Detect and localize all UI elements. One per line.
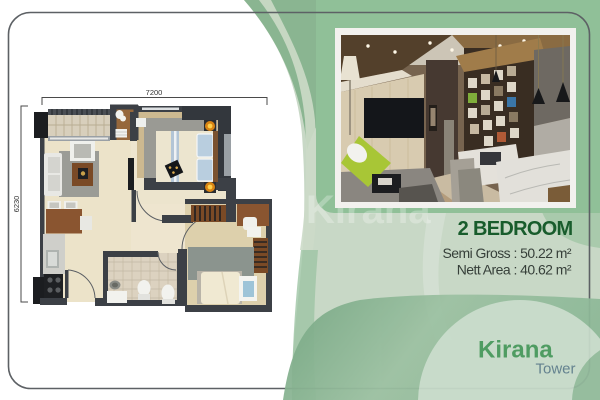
svg-text:Nett Area : 40.62 m²: Nett Area : 40.62 m² bbox=[457, 262, 572, 278]
svg-text:2 BEDROOM: 2 BEDROOM bbox=[458, 218, 573, 240]
svg-text:Semi Gross : 50.22 m²: Semi Gross : 50.22 m² bbox=[443, 245, 572, 261]
svg-text:6230: 6230 bbox=[12, 196, 21, 213]
svg-text:Kirana: Kirana bbox=[478, 337, 553, 364]
svg-text:Tower: Tower bbox=[535, 361, 575, 378]
svg-text:7200: 7200 bbox=[146, 88, 163, 97]
